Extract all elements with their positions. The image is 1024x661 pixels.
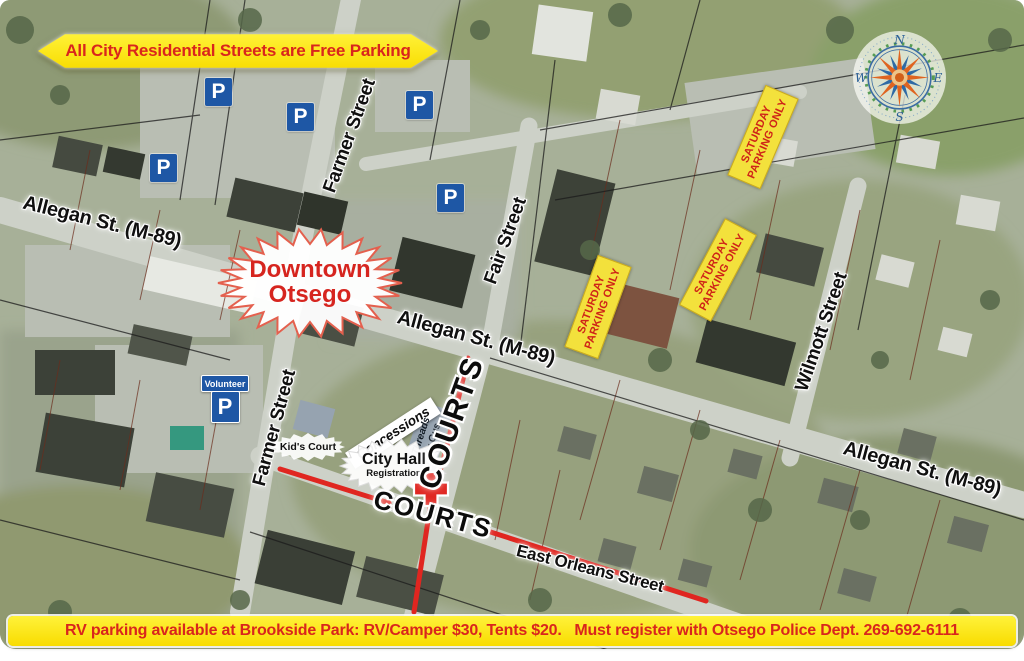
kids-court-label: Kid's Court (270, 432, 346, 462)
free-parking-text: All City Residential Streets are Free Pa… (65, 41, 410, 61)
downtown-line2: Otsego (269, 283, 352, 308)
parking-icon: P (205, 78, 232, 106)
parking-icon: P (287, 103, 314, 131)
parking-icon: P (406, 91, 433, 119)
parking-p-letter: P (443, 186, 457, 210)
city-hall-name: City Hall (362, 452, 426, 468)
compass-s-label: S (895, 110, 903, 124)
downtown-line1: Downtown (249, 258, 370, 283)
banner-arrow-shape: All City Residential Streets are Free Pa… (38, 32, 438, 70)
parking-p-letter: P (156, 156, 170, 180)
parking-p-letter: P (211, 391, 240, 423)
rv-parking-text: RV parking available at Brookside Park: … (65, 622, 959, 640)
compass-rose: N E S W (851, 29, 948, 126)
parking-p-letter: P (412, 93, 426, 117)
free-parking-banner: All City Residential Streets are Free Pa… (38, 32, 438, 70)
parking-p-letter: P (211, 80, 225, 104)
compass-e-label: E (932, 71, 942, 85)
parking-icon: P (150, 154, 177, 182)
rv-parking-banner: RV parking available at Brookside Park: … (8, 616, 1016, 646)
parking-p-letter: P (293, 105, 307, 129)
volunteer-parking-icon: Volunteer P (201, 375, 249, 423)
downtown-otsego-title: Downtown Otsego (214, 225, 406, 341)
parking-icon: P (437, 184, 464, 212)
otsego-parking-map: N E S W Allegan St. (M-89) Farmer Street… (0, 0, 1024, 661)
volunteer-label: Volunteer (201, 375, 249, 392)
compass-w-label: W (855, 71, 869, 85)
compass-n-label: N (893, 33, 905, 47)
